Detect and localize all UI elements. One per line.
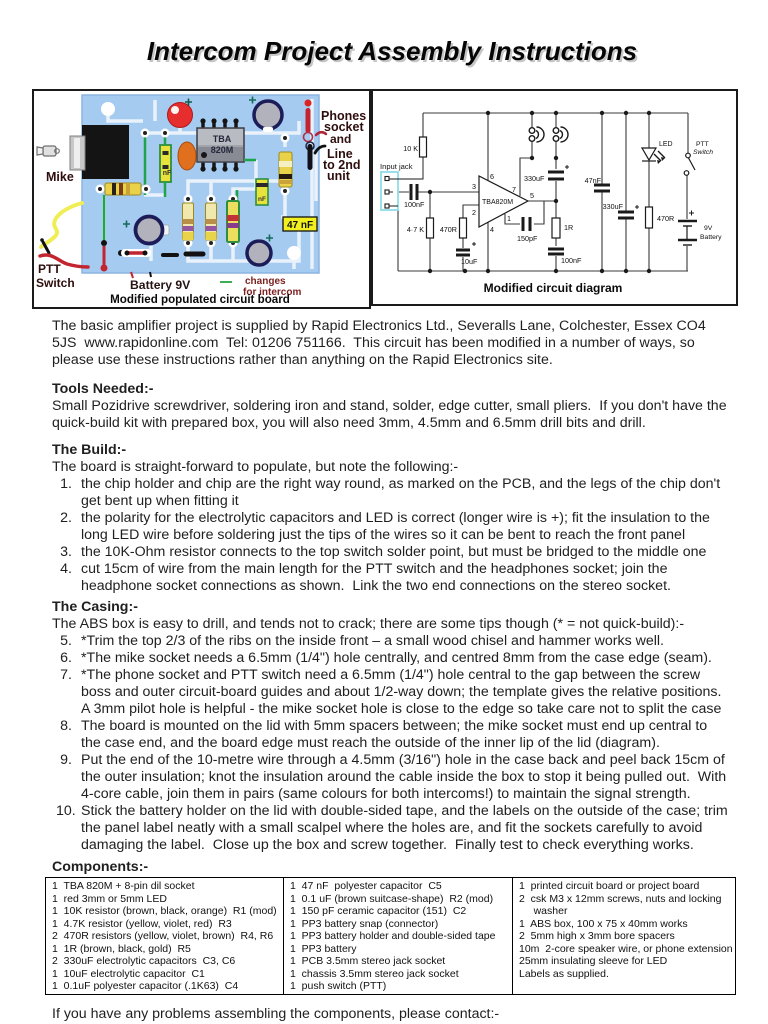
svg-text:10 K: 10 K <box>403 144 418 153</box>
svg-text:changes: changes <box>245 276 286 287</box>
svg-text:unit: unit <box>327 169 351 183</box>
svg-text:330uF: 330uF <box>524 174 545 183</box>
svg-text:820M: 820M <box>211 145 234 155</box>
svg-text:nF: nF <box>163 170 172 177</box>
svg-text:Input jack: Input jack <box>380 162 413 171</box>
svg-text:Switch: Switch <box>693 149 713 156</box>
svg-text:100nF: 100nF <box>561 256 582 265</box>
svg-text:LED: LED <box>659 141 673 148</box>
svg-text:and: and <box>330 132 351 146</box>
svg-text:Modified populated circuit boa: Modified populated circuit board <box>110 293 290 306</box>
svg-text:5: 5 <box>530 191 534 200</box>
svg-text:9V: 9V <box>704 225 713 232</box>
svg-text:470R: 470R <box>440 225 457 234</box>
svg-text:10uF: 10uF <box>461 257 478 266</box>
svg-text:330uF: 330uF <box>603 202 624 211</box>
svg-text:47 nF: 47 nF <box>287 220 313 231</box>
svg-text:2: 2 <box>472 208 476 217</box>
svg-text:3: 3 <box>472 182 476 191</box>
svg-text:47nF: 47nF <box>585 176 602 185</box>
svg-text:1: 1 <box>507 214 511 223</box>
svg-text:1R: 1R <box>564 223 573 232</box>
svg-text:Battery: Battery <box>700 234 722 241</box>
svg-text:PTT: PTT <box>696 141 709 148</box>
svg-text:4·7 K: 4·7 K <box>407 225 424 234</box>
svg-text:TBA: TBA <box>213 134 232 144</box>
svg-text:Switch: Switch <box>36 276 75 290</box>
svg-text:150pF: 150pF <box>517 234 538 243</box>
svg-text:470R: 470R <box>657 214 674 223</box>
svg-text:Modified circuit diagram: Modified circuit diagram <box>484 281 623 295</box>
svg-text:PTT: PTT <box>38 262 61 276</box>
svg-text:6: 6 <box>490 172 494 181</box>
svg-text:100nF: 100nF <box>404 200 425 209</box>
svg-text:nF: nF <box>258 196 266 203</box>
svg-text:TBA820M: TBA820M <box>482 199 513 206</box>
svg-text:7: 7 <box>512 185 516 194</box>
svg-text:4: 4 <box>490 225 494 234</box>
svg-text:Mike: Mike <box>46 170 74 184</box>
svg-text:Battery 9V: Battery 9V <box>130 278 191 292</box>
